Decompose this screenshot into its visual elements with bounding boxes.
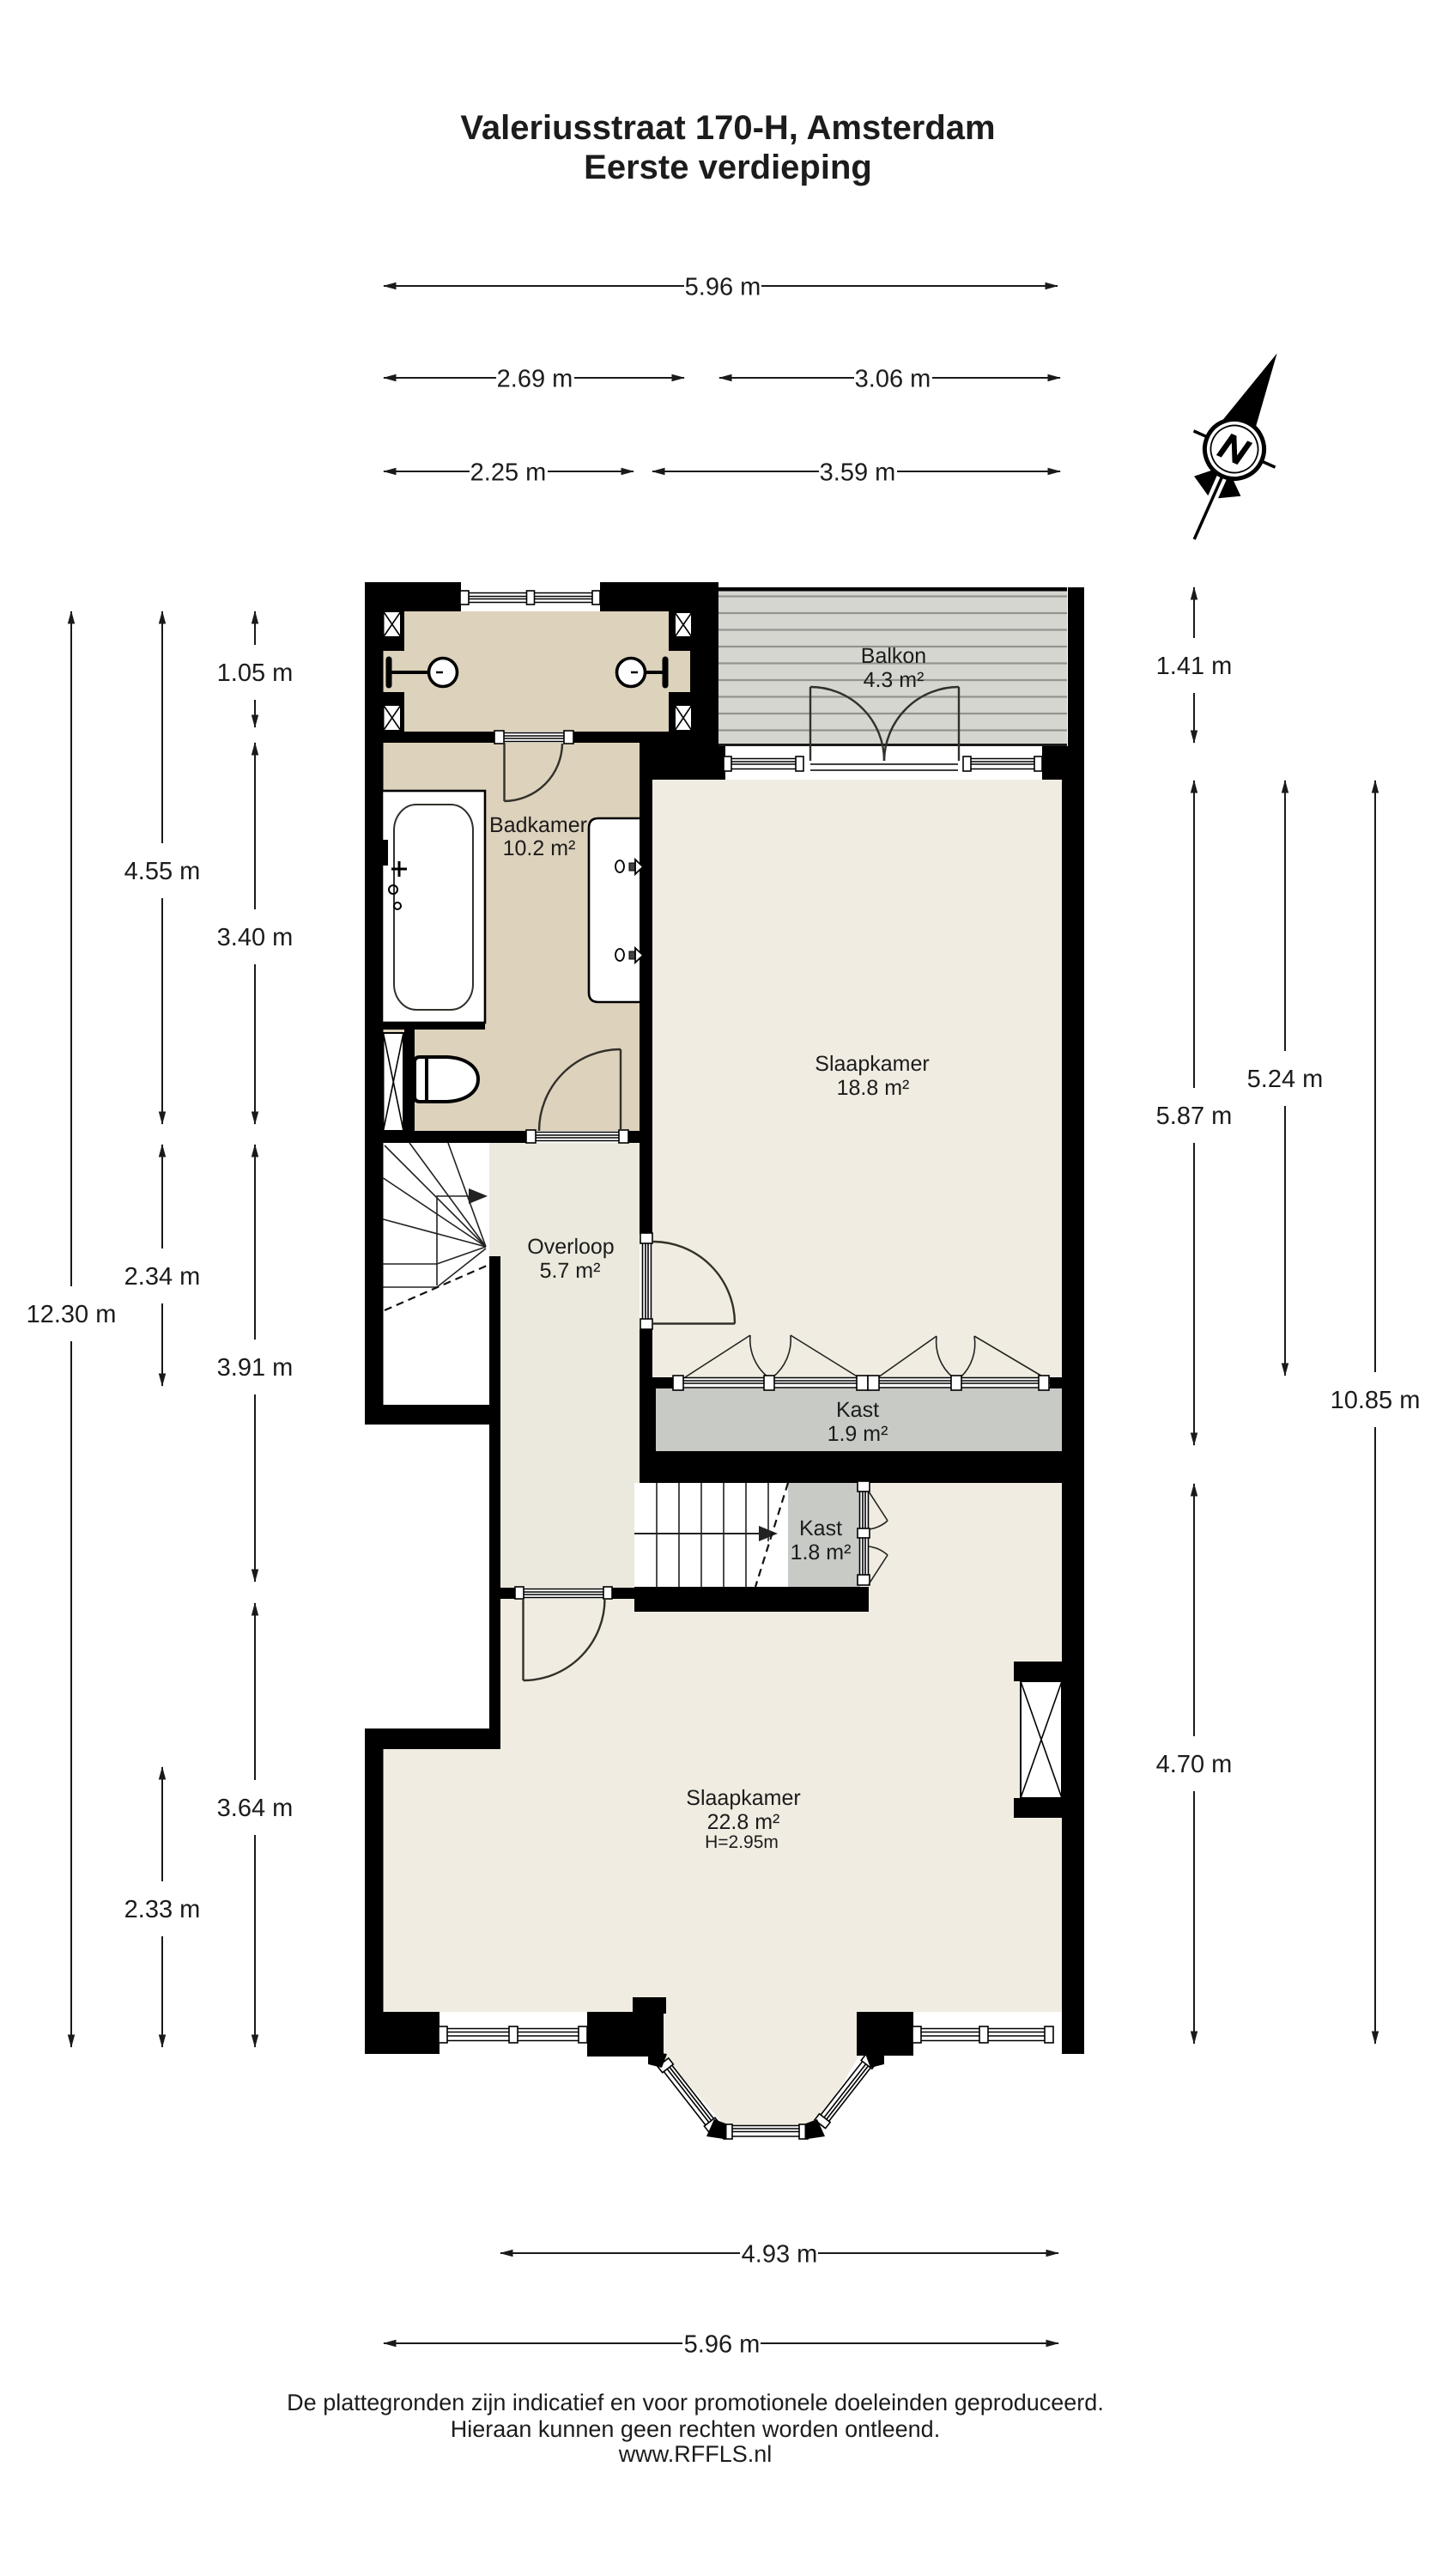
svg-text:4.3 m²: 4.3 m²: [864, 668, 925, 692]
svg-text:2.33 m: 2.33 m: [124, 1896, 201, 1923]
svg-text:3.06 m: 3.06 m: [855, 366, 931, 393]
svg-text:10.2 m²: 10.2 m²: [503, 836, 576, 860]
svg-text:Slaapkamer: Slaapkamer: [815, 1052, 929, 1076]
svg-text:4.55 m: 4.55 m: [124, 858, 201, 885]
svg-text:3.59 m: 3.59 m: [820, 459, 896, 487]
svg-text:4.70 m: 4.70 m: [1156, 1751, 1233, 1778]
svg-text:Kast: Kast: [836, 1398, 879, 1422]
svg-text:5.96 m: 5.96 m: [684, 2331, 761, 2359]
svg-text:Badkamer: Badkamer: [489, 813, 587, 837]
svg-text:Balkon: Balkon: [861, 644, 926, 668]
svg-text:5.7 m²: 5.7 m²: [540, 1259, 601, 1283]
svg-text:5.87 m: 5.87 m: [1156, 1103, 1233, 1130]
svg-text:12.30 m: 12.30 m: [27, 1301, 117, 1328]
svg-text:1.41 m: 1.41 m: [1156, 653, 1233, 680]
svg-text:10.85 m: 10.85 m: [1331, 1387, 1421, 1414]
svg-text:2.69 m: 2.69 m: [497, 366, 573, 393]
svg-text:1.9 m²: 1.9 m²: [828, 1422, 888, 1446]
svg-text:3.91 m: 3.91 m: [217, 1354, 294, 1382]
svg-text:22.8 m²: 22.8 m²: [707, 1810, 780, 1834]
svg-text:5.24 m: 5.24 m: [1247, 1066, 1324, 1093]
svg-text:3.40 m: 3.40 m: [217, 924, 294, 951]
svg-text:1.05 m: 1.05 m: [217, 659, 294, 687]
svg-text:5.96 m: 5.96 m: [685, 274, 761, 301]
svg-text:Hieraan kunnen geen rechten wo: Hieraan kunnen geen rechten worden ontle…: [451, 2416, 940, 2442]
svg-text:Valeriusstraat 170-H, Amsterda: Valeriusstraat 170-H, Amsterdam: [460, 109, 995, 147]
svg-text:2.34 m: 2.34 m: [124, 1263, 201, 1291]
svg-text:1.8 m²: 1.8 m²: [791, 1540, 852, 1564]
svg-text:3.64 m: 3.64 m: [217, 1795, 294, 1822]
svg-text:4.93 m: 4.93 m: [742, 2241, 818, 2269]
svg-text:Overloop: Overloop: [527, 1235, 614, 1259]
svg-text:Slaapkamer: Slaapkamer: [686, 1786, 800, 1810]
svg-text:H=2.95m: H=2.95m: [705, 1832, 779, 1852]
svg-text:18.8 m²: 18.8 m²: [837, 1076, 910, 1100]
svg-text:Kast: Kast: [799, 1516, 842, 1540]
svg-text:2.25 m: 2.25 m: [470, 459, 547, 487]
svg-text:www.RFFLS.nl: www.RFFLS.nl: [618, 2441, 773, 2467]
svg-text:Eerste verdieping: Eerste verdieping: [584, 149, 872, 186]
svg-text:De plattegronden zijn indicati: De plattegronden zijn indicatief en voor…: [287, 2390, 1104, 2415]
